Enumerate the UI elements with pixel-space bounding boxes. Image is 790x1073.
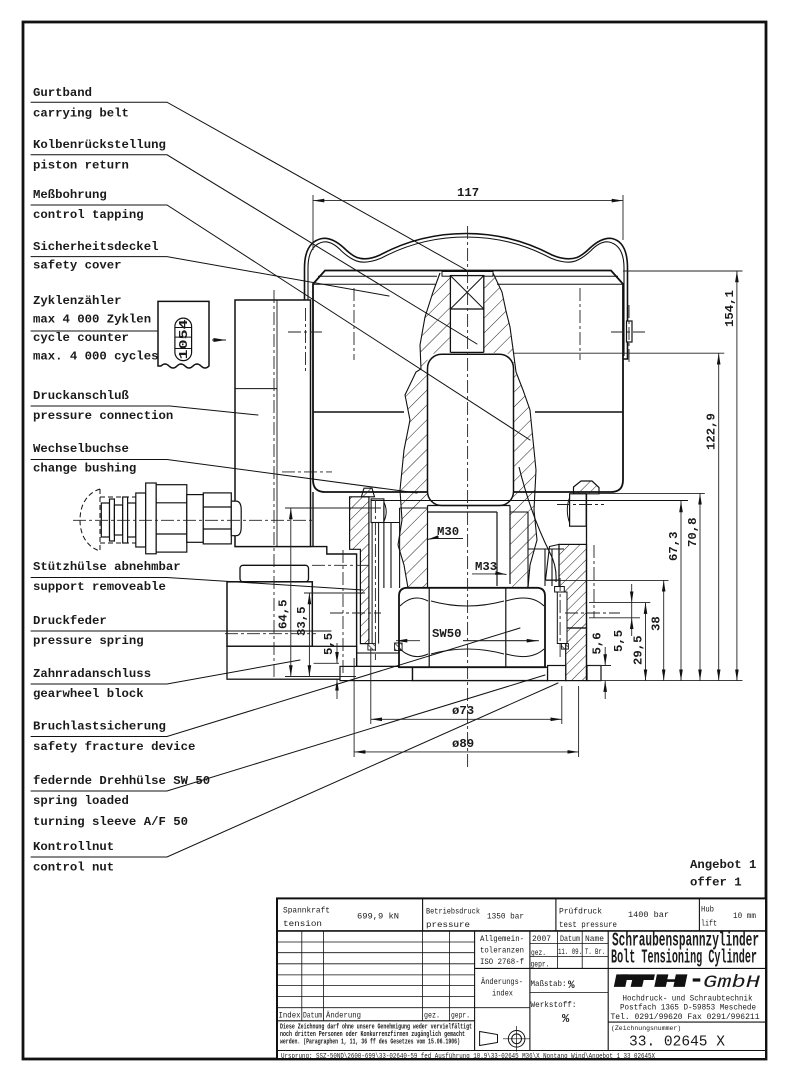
svg-text:M30: M30 [437,525,459,539]
svg-text:max 4 000 Zyklen: max 4 000 Zyklen [33,313,151,327]
svg-text:lift: lift [701,920,717,929]
svg-text:33,5: 33,5 [295,606,309,636]
svg-text:33. 02645 X: 33. 02645 X [629,1034,725,1051]
svg-text:safety fracture device: safety fracture device [33,740,195,754]
svg-text:2007: 2007 [532,935,551,944]
svg-text:Kontrollnut: Kontrollnut [33,840,114,854]
svg-text:5,5: 5,5 [322,633,336,655]
svg-text:Hochdruck- und Schraubtechnik: Hochdruck- und Schraubtechnik [623,995,753,1004]
svg-text:pressure connection: pressure connection [33,409,173,423]
svg-text:29,5: 29,5 [632,635,646,665]
svg-text:ISO 2768-f: ISO 2768-f [480,958,524,967]
svg-text:Postfach 1365 D-59853 Meschede: Postfach 1365 D-59853 Meschede [620,1004,756,1013]
svg-text:5,5: 5,5 [612,630,626,652]
svg-text:gepr.: gepr. [451,1012,470,1021]
svg-text:Datum: Datum [303,1012,322,1021]
svg-text:Zahnradanschluss: Zahnradanschluss [33,667,151,681]
svg-text:Tel. 0291/99620 Fax 0291/9962: Tel. 0291/99620 Fax 0291/996211 [611,1013,760,1022]
svg-text:gez.: gez. [424,1012,440,1021]
svg-text:Angebot 1: Angebot 1 [690,858,756,872]
svg-text:max. 4 000 cycles: max. 4 000 cycles [33,350,158,364]
svg-text:turning sleeve A/F 50: turning sleeve A/F 50 [33,815,188,829]
svg-text:Datum: Datum [560,935,580,944]
svg-text:Bolt Tensioning Cylinder: Bolt Tensioning Cylinder [611,947,757,969]
svg-text:Gurtband: Gurtband [33,86,92,100]
svg-text:T. Br.: T. Br. [585,948,605,957]
svg-text:ø89: ø89 [452,737,474,751]
svg-text:Maßstab:: Maßstab: [531,980,567,989]
svg-text:1054: 1054 [178,319,191,359]
svg-text:piston return: piston return [33,159,129,173]
svg-text:Name: Name [585,935,604,944]
svg-text:64,5: 64,5 [277,599,291,629]
svg-text:154,1: 154,1 [723,290,737,327]
svg-text:carrying belt: carrying belt [33,107,129,121]
svg-text:5,6: 5,6 [591,632,605,654]
svg-text:offer 1: offer 1 [690,876,742,890]
svg-text:Allgemein-: Allgemein- [480,935,524,944]
svg-text:change bushing: change bushing [33,462,136,476]
svg-text:Betriebsdruck: Betriebsdruck [426,908,480,917]
svg-text:support removeable: support removeable [33,580,166,594]
svg-text:Sicherheitsdeckel: Sicherheitsdeckel [33,240,158,254]
svg-text:Änderungs-: Änderungs- [481,978,523,987]
svg-text:70,8: 70,8 [686,517,700,547]
svg-text:ø73: ø73 [452,704,474,718]
svg-text:GmbH: GmbH [703,973,761,993]
svg-text:Kolbenrückstellung: Kolbenrückstellung [33,138,166,152]
svg-text:M33: M33 [475,560,497,574]
svg-text:gearwheel block: gearwheel block [33,687,144,701]
svg-text:Zyklenzähler: Zyklenzähler [33,294,122,308]
svg-text:pressure: pressure [426,921,470,930]
svg-text:cycle counter: cycle counter [33,331,129,345]
svg-text:toleranzen: toleranzen [480,947,524,956]
svg-text:Druckanschluß: Druckanschluß [33,389,130,403]
svg-text:Wechselbuchse: Wechselbuchse [33,442,129,456]
svg-text:%: % [568,980,575,992]
svg-text:gepr.: gepr. [531,961,550,970]
svg-text:38: 38 [650,616,664,631]
svg-text:%: % [562,1012,570,1026]
svg-text:(Zeichnungsnummer): (Zeichnungsnummer) [611,1025,681,1032]
svg-text:10 mm: 10 mm [733,912,756,921]
svg-text:699,9 kN: 699,9 kN [357,913,399,922]
svg-text:Ursprung: SSZ-50ND\2600-699\33: Ursprung: SSZ-50ND\2600-699\33-02640-59 … [281,1053,656,1061]
svg-text:Bruchlastsicherung: Bruchlastsicherung [33,720,166,734]
svg-text:Änderung: Änderung [326,1012,361,1021]
svg-text:Druckfeder: Druckfeder [33,614,107,628]
svg-text:Meßbohrung: Meßbohrung [33,188,107,202]
svg-text:gez.: gez. [531,949,546,958]
svg-text:11. 09.: 11. 09. [558,948,582,957]
svg-text:122,9: 122,9 [705,413,719,450]
svg-text:Stützhülse abnehmbar: Stützhülse abnehmbar [33,560,181,574]
svg-text:Index: Index [279,1012,301,1021]
svg-text:67,3: 67,3 [667,531,681,561]
svg-text:control nut: control nut [33,861,114,875]
svg-text:Prüfdruck: Prüfdruck [559,908,602,917]
svg-text:tension: tension [283,920,322,929]
svg-text:Hub: Hub [701,906,714,915]
svg-text:117: 117 [457,186,479,200]
svg-text:1350 bar: 1350 bar [487,913,524,922]
svg-text:SW50: SW50 [432,627,462,641]
svg-text:test pressure: test pressure [559,921,617,930]
svg-text:Werkstoff:: Werkstoff: [531,1001,577,1010]
svg-text:werden. (Paragraphen 1, 11, 36: werden. (Paragraphen 1, 11, 36 ff des Ge… [280,1039,460,1047]
svg-text:spring loaded: spring loaded [33,794,129,808]
svg-text:safety cover: safety cover [33,259,122,273]
svg-text:index: index [492,990,513,999]
svg-text:pressure spring: pressure spring [33,634,144,648]
svg-text:Spannkraft: Spannkraft [283,907,330,916]
svg-text:control tapping: control tapping [33,208,144,222]
svg-text:1400 bar: 1400 bar [628,911,669,920]
